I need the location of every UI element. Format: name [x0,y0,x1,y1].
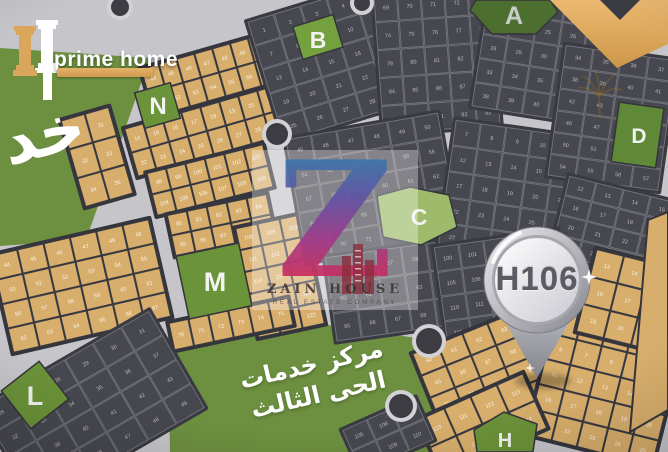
block-label-H: H [498,430,512,452]
block-label-A: A [505,2,523,30]
svg-text:37: 37 [658,67,665,74]
svg-text:47: 47 [593,125,600,132]
svg-text:26: 26 [569,33,576,40]
svg-text:12: 12 [459,158,466,165]
svg-text:48: 48 [373,134,380,141]
svg-text:15: 15 [535,168,542,175]
svg-text:75: 75 [277,311,284,318]
svg-text:81: 81 [434,58,441,64]
svg-text:27: 27 [448,235,455,242]
svg-text:110: 110 [450,305,460,312]
svg-text:101: 101 [468,252,478,259]
svg-text:35: 35 [537,78,544,85]
svg-text:111: 111 [475,301,484,308]
svg-text:36: 36 [630,63,637,70]
svg-text:71: 71 [198,328,205,335]
svg-text:86: 86 [200,237,207,244]
block-label-B: B [310,27,327,53]
svg-text:72: 72 [218,324,225,331]
pin-label: H106 [472,260,602,298]
svg-text:85: 85 [412,87,419,93]
svg-text:87: 87 [220,233,227,240]
z-logo: Z [260,148,410,290]
block-label-M: M [204,267,227,297]
svg-text:87: 87 [459,84,466,90]
svg-text:24: 24 [503,216,510,223]
svg-text:42: 42 [568,99,575,106]
zain-house-watermark: Z ZAIN HOUSE Real Estate Company [252,150,418,310]
svg-text:40: 40 [627,85,634,92]
svg-text:74: 74 [385,33,392,39]
svg-text:75: 75 [408,32,415,38]
svg-text:47: 47 [348,138,355,145]
svg-text:70: 70 [178,332,185,339]
svg-text:76: 76 [432,30,439,36]
svg-text:38: 38 [482,94,489,101]
svg-text:17: 17 [456,183,463,190]
column-icon [12,20,60,102]
svg-text:82: 82 [215,212,222,219]
prime-home-logo: prime home [8,16,188,108]
svg-text:30: 30 [540,54,547,61]
svg-text:71: 71 [430,2,437,8]
svg-text:51: 51 [590,146,597,153]
svg-text:54: 54 [559,164,566,171]
svg-text:19: 19 [506,191,513,198]
svg-text:56: 56 [615,172,622,179]
svg-text:10: 10 [539,143,546,150]
svg-text:55: 55 [587,168,594,175]
svg-text:28: 28 [490,46,497,53]
svg-text:41: 41 [655,89,662,96]
svg-text:56: 56 [428,149,435,156]
svg-text:57: 57 [642,176,649,183]
watermark-tagline: Real Estate Company [252,299,418,306]
svg-text:49: 49 [399,129,406,136]
svg-text:105: 105 [446,280,456,287]
svg-text:34: 34 [511,74,518,81]
block-label-L: L [27,381,44,411]
logo-banner [57,68,153,77]
svg-text:25: 25 [544,29,551,36]
svg-text:34: 34 [574,55,581,62]
svg-text:29: 29 [515,50,522,57]
svg-text:70: 70 [406,4,413,10]
svg-text:13: 13 [485,161,492,168]
svg-text:73: 73 [238,319,245,326]
svg-text:66: 66 [369,320,376,327]
svg-text:79: 79 [387,61,394,67]
svg-text:68: 68 [420,313,427,320]
svg-text:83: 83 [235,208,242,215]
svg-text:14: 14 [510,165,517,172]
svg-text:92: 92 [461,112,468,118]
svg-text:77: 77 [455,28,462,34]
svg-text:69: 69 [383,5,390,11]
svg-text:35: 35 [602,59,609,66]
svg-text:84: 84 [389,89,396,95]
svg-text:46: 46 [565,121,572,128]
svg-text:85: 85 [180,241,187,248]
svg-text:25: 25 [528,220,535,227]
watermark-company-name: ZAIN HOUSE [252,282,418,297]
svg-text:80: 80 [175,221,182,228]
svg-text:80: 80 [410,59,417,65]
stage: 4445464748495051525354555657141516171819… [0,0,668,452]
svg-text:50: 50 [562,142,569,149]
svg-text:23: 23 [477,213,484,220]
svg-text:20: 20 [532,194,539,201]
svg-text:74: 74 [257,315,264,322]
svg-text:40: 40 [533,102,540,109]
svg-text:65: 65 [344,323,351,330]
svg-text:25: 25 [639,447,646,452]
roundabout [262,119,292,149]
svg-text:82: 82 [457,56,464,62]
svg-text:33: 33 [486,70,493,77]
svg-text:62: 62 [433,174,440,181]
svg-text:67: 67 [395,316,402,323]
svg-text:100: 100 [443,255,453,262]
block-label-D: D [631,125,646,148]
svg-text:18: 18 [481,187,488,194]
svg-text:72: 72 [453,0,460,6]
svg-text:39: 39 [507,98,514,105]
svg-text:81: 81 [195,216,202,223]
svg-text:50: 50 [424,125,431,132]
svg-text:86: 86 [436,86,443,92]
svg-text:38: 38 [571,77,578,84]
